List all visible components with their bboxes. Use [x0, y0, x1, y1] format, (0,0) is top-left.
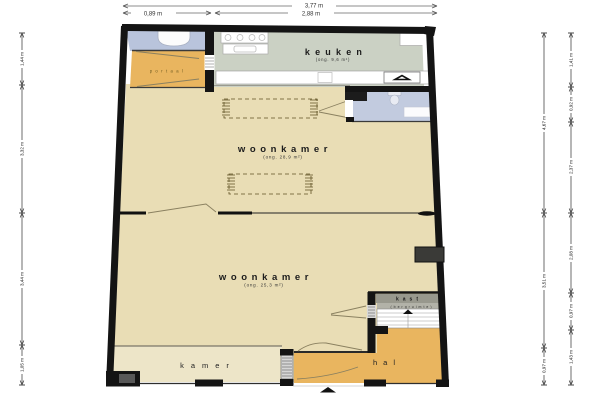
svg-text:3,44 m: 3,44 m — [20, 272, 25, 286]
svg-text:(ong. 28,9 m²): (ong. 28,9 m²) — [263, 155, 302, 160]
svg-text:0,92 m: 0,92 m — [569, 97, 574, 111]
svg-text:portaal: portaal — [150, 69, 187, 74]
svg-text:2,08 m: 2,08 m — [569, 246, 574, 260]
svg-text:3,77 m: 3,77 m — [305, 4, 323, 10]
svg-text:0,97 m: 0,97 m — [542, 359, 547, 373]
svg-text:(bergruimte): (bergruimte) — [390, 305, 433, 309]
svg-text:keuken: keuken — [305, 47, 367, 57]
svg-text:hal: hal — [373, 358, 401, 367]
svg-text:kast: kast — [396, 296, 422, 302]
svg-text:1,43 m: 1,43 m — [569, 350, 574, 364]
svg-text:0,89 m: 0,89 m — [144, 12, 162, 18]
svg-text:(ong. 9,6 m²): (ong. 9,6 m²) — [316, 57, 350, 62]
svg-text:3,32 m: 3,32 m — [20, 142, 25, 156]
svg-text:woonkamer: woonkamer — [237, 144, 332, 155]
svg-text:1,05 m: 1,05 m — [20, 358, 25, 372]
svg-text:2,37 m: 2,37 m — [569, 160, 574, 174]
svg-text:3,51 m: 3,51 m — [542, 274, 547, 288]
svg-text:1,44 m: 1,44 m — [20, 52, 25, 66]
svg-text:4,67 m: 4,67 m — [542, 116, 547, 130]
svg-text:0,97 m: 0,97 m — [569, 304, 574, 318]
svg-text:woonkamer: woonkamer — [218, 272, 313, 283]
svg-text:2,88 m: 2,88 m — [302, 12, 320, 18]
svg-text:kamer: kamer — [180, 361, 236, 370]
svg-text:(ong. 25,3 m²): (ong. 25,3 m²) — [244, 283, 283, 288]
svg-text:1,41 m: 1,41 m — [569, 53, 574, 67]
